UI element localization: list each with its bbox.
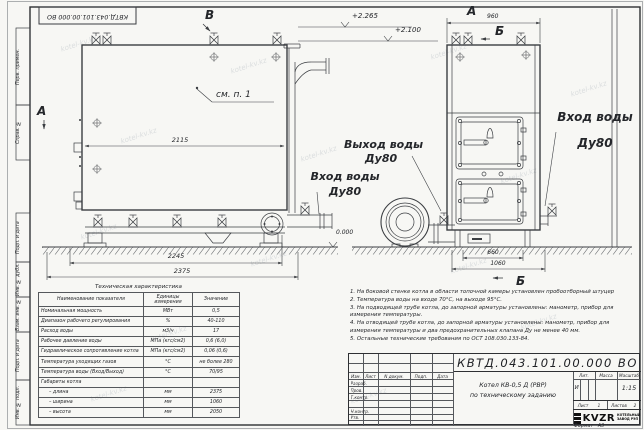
label-water-inlet-left: Вход воды [302, 171, 388, 182]
spec-cell [193, 377, 240, 387]
spec-cell: Гидравлическое сопротивление котла [39, 347, 144, 357]
spec-cell: 0,6 (6,0) [193, 337, 240, 347]
spec-cell: °С [144, 367, 193, 377]
spec-header-cell: Наименование показателя [39, 293, 144, 307]
title-block: КВТД.043.101.00.000 ВО Изм.ЛистN докум.П… [348, 353, 640, 425]
spec-cell: – длина [39, 387, 144, 397]
view-marker-b: В [205, 9, 214, 21]
spec-cell: МВт [144, 307, 193, 317]
sheet-label: Лист [574, 403, 592, 408]
top-doc-number: КВТД.043.101.00.000 ВО [39, 7, 136, 24]
front-view-title: А [467, 5, 476, 17]
spec-cell: Температура уходящих газов [39, 357, 144, 367]
spec-cell: – ширина [39, 397, 144, 407]
lit-label: Лит. [573, 373, 595, 378]
callout-see-item-1: см. п. 1 [216, 91, 251, 100]
logo-sub-line2: ЗАВОД РЭП [617, 418, 640, 422]
spec-row: Номинальная мощностьМВт0,5 [39, 307, 240, 317]
sheet-value: 1 [593, 403, 605, 408]
stamp-sprav-no: Справ. № [16, 105, 21, 160]
spec-cell: Рабочее давление воды [39, 337, 144, 347]
label-water-outlet-dn: Ду80 [344, 153, 418, 164]
tb-role-cell: Т.контр. [351, 395, 379, 400]
product-title-line1: Котел КВ-0,5 Д (РВР) [453, 381, 573, 391]
spec-cell: Температура воды (Вход/Выход) [39, 367, 144, 377]
note-2: 2. Температура воды на входе 70°С, на вы… [350, 297, 638, 305]
elevation-2100: +2.100 [395, 27, 421, 34]
tb-header-cell: N докум. [378, 374, 410, 379]
spec-row: Температура воды (Вход/Выход)°С70/95 [39, 367, 240, 377]
section-marker-b-top: Б [495, 25, 504, 37]
tb-role-cell: Н.контр. [351, 409, 379, 414]
spec-cell: 1060 [193, 397, 240, 407]
spec-row: – высотамм2050 [39, 407, 240, 417]
dim-1060: 1060 [478, 261, 518, 267]
spec-cell: 0,5 [193, 307, 240, 317]
spec-row: Температура уходящих газов°Сне более 280 [39, 357, 240, 367]
spec-cell: Номинальная мощность [39, 307, 144, 317]
dim-660: 660 [473, 250, 513, 256]
elevation-2265: +2.265 [352, 13, 378, 20]
tb-header-cell: Изм. [349, 374, 363, 379]
spec-cell: °С [144, 357, 193, 367]
tb-role-cell: Утв. [351, 415, 379, 420]
drawing-sheet: kotel-kv.kzkotel-kv.kzkotel-kv.kzkotel-k… [0, 0, 644, 430]
sheets-label: Листов [608, 403, 630, 408]
mass-label: Масса [595, 373, 617, 378]
view-marker-a: А [37, 105, 46, 117]
spec-row: – ширинамм1060 [39, 397, 240, 407]
format-size: А3 [598, 424, 604, 429]
note-5: 5. Остальные технические требования по О… [350, 336, 638, 344]
note-1: 1. На боковой стенке котла в области топ… [350, 289, 638, 297]
title-block-doc-number: КВТД.043.101.00.000 ВО [453, 354, 641, 372]
note-3: 3. На подводящей трубе котла, до запорно… [350, 305, 638, 321]
boiler-front-view [447, 33, 557, 247]
logo-mark-icon [574, 413, 581, 424]
dim-2245: 2245 [156, 253, 196, 260]
spec-cell: – высота [39, 407, 144, 417]
lit-mass-scale-grid: Лит. Масса Масштаб И 1:15 [573, 372, 641, 400]
logo-text: KVZR [583, 413, 615, 424]
spec-cell: м3/ч [144, 327, 193, 337]
spec-row: – длинамм2375 [39, 387, 240, 397]
spec-cell: МПа (кгс/см2) [144, 347, 193, 357]
spec-cell: мм [144, 387, 193, 397]
stamp-podp-data-1: Подп. и дата [16, 213, 21, 262]
spec-header-cell: Значение [193, 293, 240, 307]
spec-cell: 0,06 (0,6) [193, 347, 240, 357]
tb-header-cell: Подп. [410, 374, 432, 379]
spec-table-title: Техническая характеристика [38, 284, 239, 290]
spec-table-grid: Наименование показателяЕдиницы измерения… [38, 292, 240, 418]
product-title-line2: по техническому заданию [453, 391, 573, 401]
spec-row: Диапазон рабочего регулирования%40-110 [39, 317, 240, 327]
spec-header-cell: Единицы измерения [144, 293, 193, 307]
sheets-value: 2 [630, 403, 640, 408]
spec-cell: Расход воды [39, 327, 144, 337]
title-block-name: Котел КВ-0,5 Д (РВР) по техническому зад… [453, 372, 573, 426]
spec-cell: 2375 [193, 387, 240, 397]
spec-cell: 2050 [193, 407, 240, 417]
spec-cell: 40-110 [193, 317, 240, 327]
spec-cell: мм [144, 407, 193, 417]
stamp-inv-dubl: Инв. № дубл. [16, 262, 21, 297]
spec-row: Гидравлическое сопротивление котлаМПа (к… [39, 347, 240, 357]
dim-2115: 2115 [160, 137, 200, 144]
spec-cell: МПа (кгс/см2) [144, 337, 193, 347]
spec-cell: 17 [193, 327, 240, 337]
format-label: Формат А3 [540, 424, 638, 429]
stamp-podp-data-2: Подп. и дата [16, 332, 21, 380]
section-marker-b-bottom: Б [516, 275, 525, 287]
scale-label: Масштаб [617, 373, 641, 378]
spec-cell [144, 377, 193, 387]
dim-2375: 2375 [162, 268, 202, 275]
format-word: Формат [574, 424, 593, 429]
spec-cell: мм [144, 397, 193, 407]
stamp-vzam-inv: Взам. инв. № [16, 297, 21, 332]
spec-row: Габариты котла [39, 377, 240, 387]
spec-cell: Диапазон рабочего регулирования [39, 317, 144, 327]
label-water-inlet-right: Вход воды [552, 111, 638, 123]
spec-cell: % [144, 317, 193, 327]
spec-cell: Габариты котла [39, 377, 144, 387]
tb-role-cell: Разраб. [351, 381, 379, 386]
note-4: 4. На отводящей трубе котла, до запорной… [350, 320, 638, 336]
scale-value: 1:15 [617, 384, 641, 392]
label-water-inlet-right-dn: Ду80 [552, 137, 638, 149]
spec-table: Техническая характеристика Наименование … [38, 284, 239, 418]
elevation-zero: 0.000 [336, 230, 353, 236]
technical-notes: 1. На боковой стенке котла в области топ… [350, 289, 638, 344]
tb-header-cell: Дата [432, 374, 453, 379]
spec-cell: 70/95 [193, 367, 240, 377]
ground-line [42, 9, 632, 255]
dimension-lines [47, 18, 545, 280]
label-water-inlet-left-dn: Ду80 [302, 186, 388, 197]
label-water-outlet: Выход воды [344, 139, 418, 150]
blower-fan [381, 198, 455, 247]
boiler-side-view [74, 33, 332, 247]
sheet-row: Лист 1 Листов 2 [573, 400, 641, 409]
stamp-perv-primen: Перв. примен. [16, 28, 21, 105]
tb-header-cell: Лист [363, 374, 378, 379]
lit-value: И [573, 385, 580, 391]
spec-row: Рабочее давление водыМПа (кгс/см2)0,6 (6… [39, 337, 240, 347]
spec-row: Расход водым3/ч17 [39, 327, 240, 337]
stamp-inv-podl: Инв. № подл. [16, 380, 21, 425]
tb-role-cell: Пров. [351, 388, 379, 393]
spec-cell: не более 280 [193, 357, 240, 367]
dim-960: 960 [487, 14, 498, 20]
